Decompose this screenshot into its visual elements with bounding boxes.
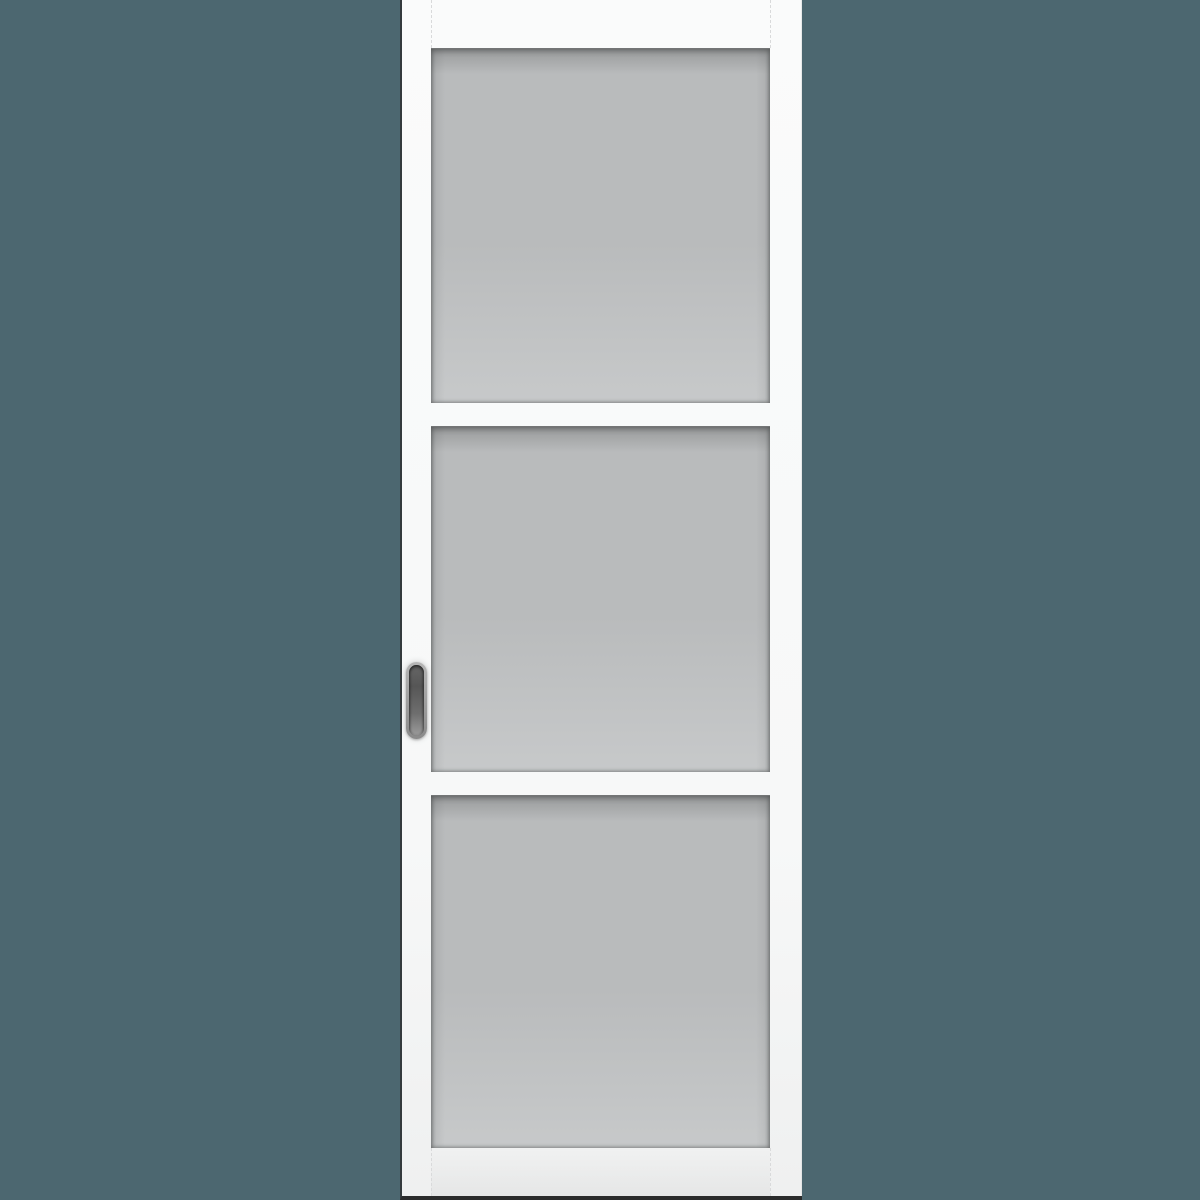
door-glass-panel-bottom (431, 795, 770, 1148)
door-bottom-rail (431, 1148, 770, 1196)
stile-rail-joint-line (770, 1148, 771, 1196)
door-top-rail (431, 0, 770, 48)
door-mid-rail-1 (431, 403, 770, 426)
stile-rail-joint-line (770, 0, 771, 48)
sliding-door (400, 0, 802, 1200)
stile-rail-joint-line (431, 0, 432, 48)
backdrop (0, 0, 1200, 1200)
door-glass-panel-middle (431, 426, 770, 772)
door-mid-rail-2 (431, 772, 770, 795)
door-left-stile (402, 0, 431, 1196)
door-pull-handle (406, 662, 427, 739)
door-right-stile (770, 0, 802, 1196)
door-pull-handle-recess (409, 665, 424, 736)
stile-rail-joint-line (431, 1148, 432, 1196)
door-glass-panel-top (431, 48, 770, 403)
